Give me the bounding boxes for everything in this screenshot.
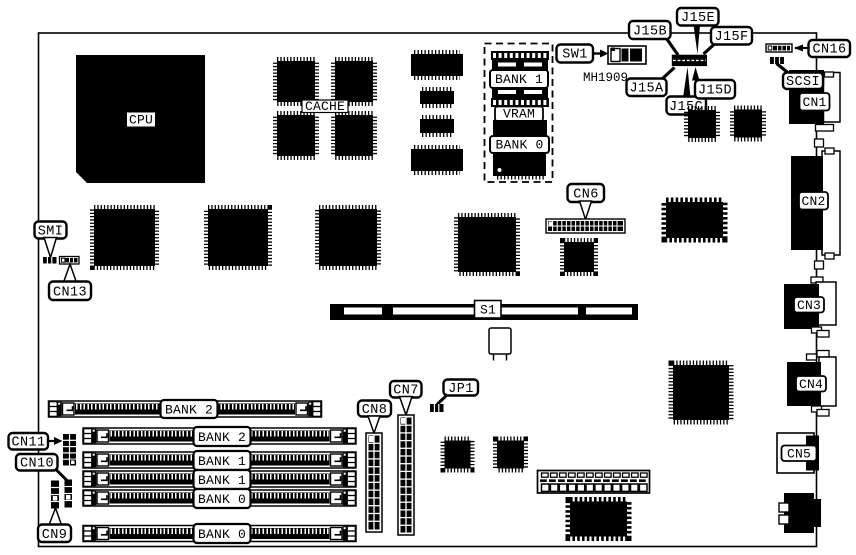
svg-text:BANK 0: BANK 0 — [495, 138, 543, 153]
svg-text:CN9: CN9 — [42, 528, 68, 543]
svg-text:VRAM: VRAM — [503, 107, 535, 122]
svg-text:J15A: J15A — [629, 82, 664, 97]
svg-text:CN4: CN4 — [799, 377, 823, 392]
svg-text:S1: S1 — [480, 303, 496, 318]
svg-text:SCSI: SCSI — [786, 75, 820, 90]
svg-text:SW1: SW1 — [562, 48, 588, 63]
svg-text:CACHE: CACHE — [305, 99, 345, 114]
svg-text:CN2: CN2 — [801, 194, 825, 209]
svg-text:BANK 1: BANK 1 — [198, 473, 246, 488]
svg-text:JP1: JP1 — [448, 382, 474, 397]
svg-text:J15D: J15D — [698, 84, 732, 99]
svg-text:CN11: CN11 — [11, 436, 45, 451]
svg-text:J15B: J15B — [633, 25, 667, 40]
svg-text:BANK 2: BANK 2 — [165, 403, 213, 418]
svg-text:BANK 1: BANK 1 — [198, 454, 246, 469]
svg-text:CN13: CN13 — [53, 286, 87, 301]
svg-text:CN3: CN3 — [797, 298, 821, 313]
svg-text:BANK 2: BANK 2 — [198, 430, 246, 445]
svg-text:CN16: CN16 — [812, 43, 846, 58]
svg-text:BANK 0: BANK 0 — [198, 492, 246, 507]
svg-text:BANK 0: BANK 0 — [198, 527, 246, 542]
svg-text:MH1909: MH1909 — [583, 71, 628, 85]
svg-text:CN5: CN5 — [787, 447, 811, 462]
svg-text:J15F: J15F — [714, 30, 748, 45]
svg-text:BANK 1: BANK 1 — [495, 72, 543, 87]
svg-text:CN1: CN1 — [802, 95, 826, 110]
svg-text:CN10: CN10 — [20, 457, 54, 472]
svg-text:CPU: CPU — [129, 113, 153, 128]
svg-text:J15E: J15E — [681, 11, 715, 26]
